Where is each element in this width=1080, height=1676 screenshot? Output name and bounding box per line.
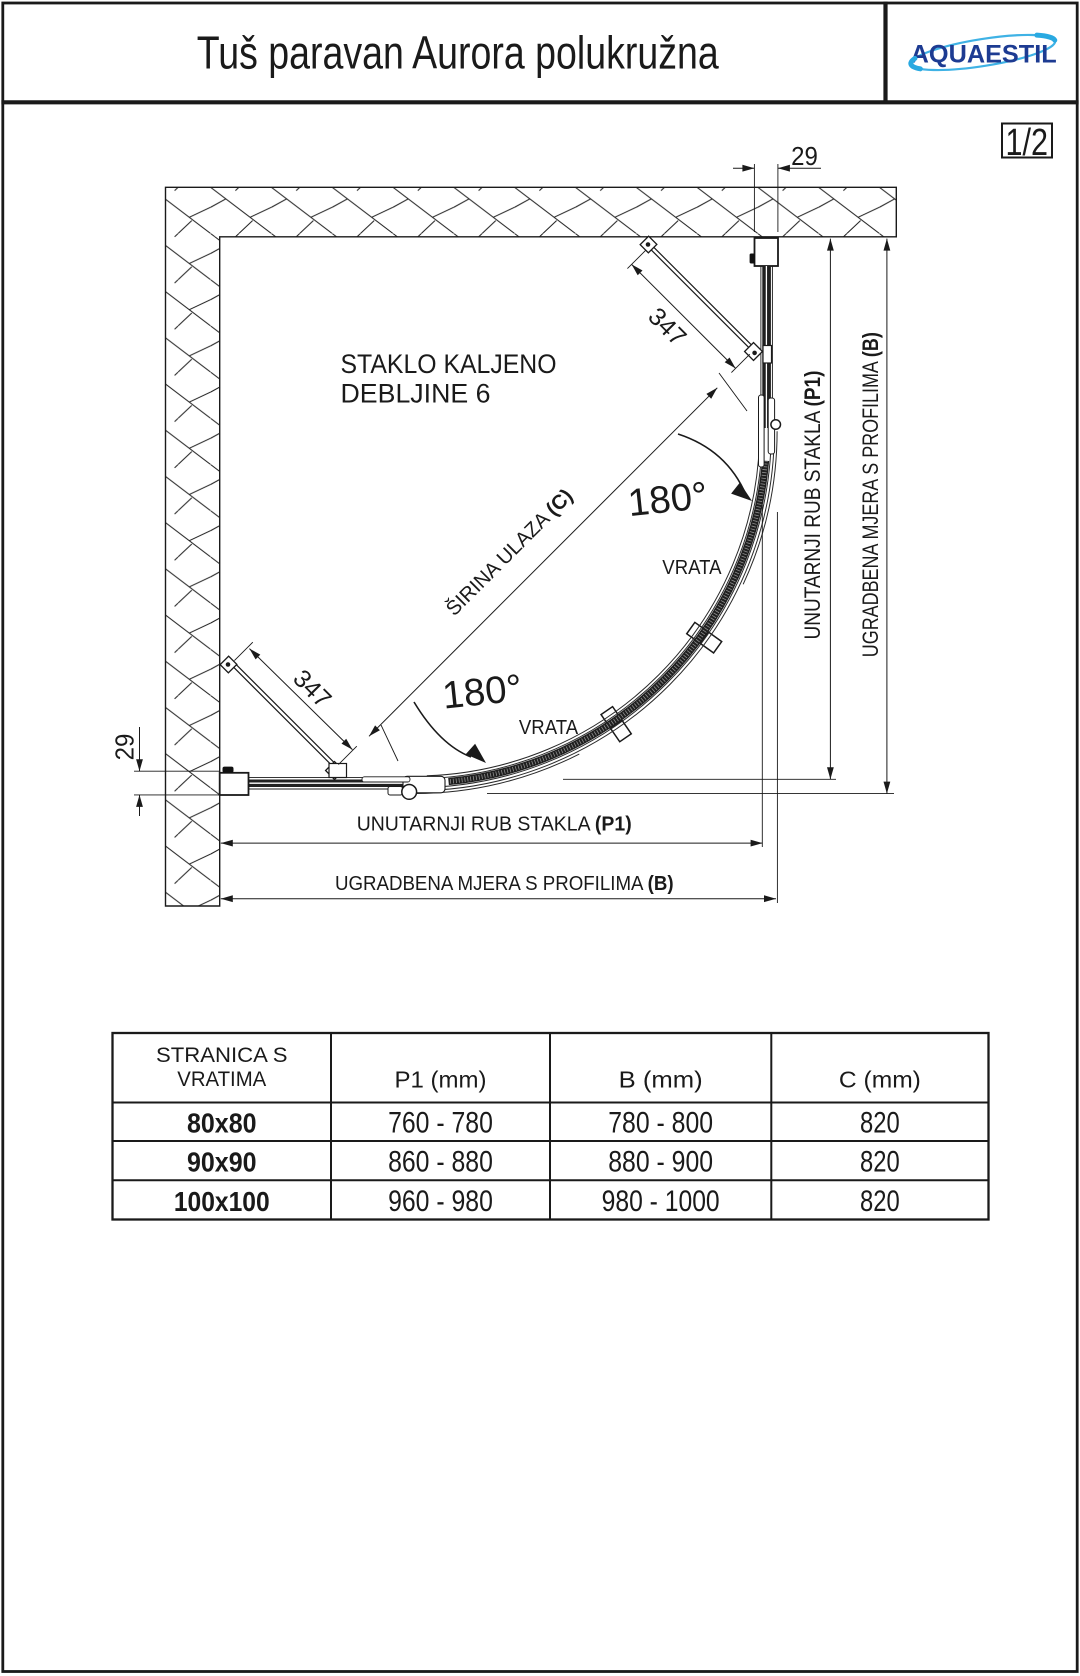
svg-text:347: 347 bbox=[287, 664, 336, 713]
svg-text:980 - 1000: 980 - 1000 bbox=[602, 1185, 720, 1218]
svg-text:880 - 900: 880 - 900 bbox=[608, 1146, 713, 1179]
svg-text:960 - 980: 960 - 980 bbox=[388, 1185, 493, 1218]
svg-text:820: 820 bbox=[860, 1146, 900, 1179]
svg-text:C (mm): C (mm) bbox=[839, 1066, 921, 1092]
svg-text:UNUTARNJI RUB STAKLA (P1): UNUTARNJI RUB STAKLA (P1) bbox=[357, 812, 632, 835]
svg-text:UNUTARNJI RUB STAKLA (P1): UNUTARNJI RUB STAKLA (P1) bbox=[800, 370, 825, 639]
svg-text:STAKLO KALJENO: STAKLO KALJENO bbox=[341, 349, 557, 379]
svg-text:780 - 800: 780 - 800 bbox=[608, 1106, 713, 1139]
svg-text:760 - 780: 760 - 780 bbox=[388, 1106, 493, 1139]
svg-text:29: 29 bbox=[112, 734, 140, 761]
svg-text:820: 820 bbox=[860, 1106, 900, 1139]
svg-text:UGRADBENA MJERA S PROFILIMA (: UGRADBENA MJERA S PROFILIMA (B) bbox=[335, 872, 674, 895]
svg-text:VRATA: VRATA bbox=[662, 557, 722, 579]
svg-text:DEBLJINE 6: DEBLJINE 6 bbox=[341, 379, 491, 409]
svg-text:860 - 880: 860 - 880 bbox=[388, 1146, 493, 1179]
svg-text:820: 820 bbox=[860, 1185, 900, 1218]
svg-text:100x100: 100x100 bbox=[174, 1186, 270, 1217]
svg-text:180°: 180° bbox=[440, 667, 524, 718]
svg-text:VRATIMA: VRATIMA bbox=[177, 1067, 267, 1091]
svg-text:ŠIRINA ULAZA (C): ŠIRINA ULAZA (C) bbox=[441, 484, 577, 620]
svg-text:STRANICA S: STRANICA S bbox=[156, 1043, 288, 1067]
svg-text:180°: 180° bbox=[626, 474, 710, 525]
svg-text:Tuš paravan Aurora polukružna: Tuš paravan Aurora polukružna bbox=[197, 27, 719, 79]
svg-text:P1 (mm): P1 (mm) bbox=[395, 1066, 487, 1092]
svg-text:AQUAESTIL: AQUAESTIL bbox=[911, 41, 1057, 69]
svg-text:1/2: 1/2 bbox=[1006, 122, 1049, 164]
svg-text:80x80: 80x80 bbox=[187, 1107, 257, 1138]
svg-text:29: 29 bbox=[791, 143, 818, 171]
svg-text:B (mm): B (mm) bbox=[619, 1066, 703, 1092]
svg-text:VRATA: VRATA bbox=[519, 717, 579, 739]
svg-text:90x90: 90x90 bbox=[187, 1147, 257, 1178]
svg-text:347: 347 bbox=[642, 302, 691, 351]
svg-text:UGRADBENA MJERA S PROFILIMA (: UGRADBENA MJERA S PROFILIMA (B) bbox=[858, 332, 883, 657]
